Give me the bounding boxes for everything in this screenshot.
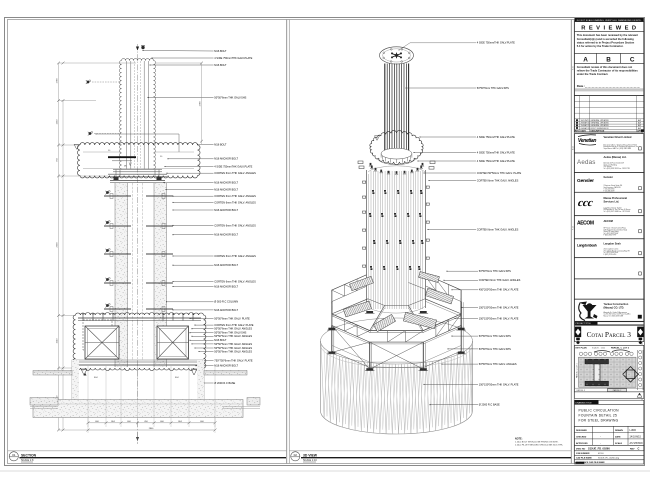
svg-text:Venetian Orient Limited: Venetian Orient Limited bbox=[604, 136, 632, 139]
svg-text:LangdonSeah: LangdonSeah bbox=[577, 243, 597, 247]
svg-text:CORTEN 6mm THK GALV. ANGLES: CORTEN 6mm THK GALV. ANGLES bbox=[477, 227, 519, 231]
svg-text:M16 ANCHOR BOLT: M16 ANCHOR BOLT bbox=[214, 157, 238, 161]
svg-text:CORTEN 6mm THK GALV. ANGLES: CORTEN 6mm THK GALV. ANGLES bbox=[214, 223, 256, 227]
svg-text:M16 ANCHOR BOLT: M16 ANCHOR BOLT bbox=[214, 233, 238, 237]
svg-text:LUND: LUND bbox=[630, 429, 637, 432]
svg-text:02: 02 bbox=[294, 453, 298, 457]
svg-text:SECTION: SECTION bbox=[21, 454, 37, 458]
svg-text:FIRST SUBMISSION: FIRST SUBMISSION bbox=[591, 128, 609, 130]
svg-text:Macau Tel : (853) 2870 0389: Macau Tel : (853) 2870 0389 bbox=[604, 315, 624, 317]
svg-text:Ø 2000 R.C BASE: Ø 2000 R.C BASE bbox=[479, 403, 500, 407]
svg-text:Langdon Seah: Langdon Seah bbox=[604, 242, 622, 245]
svg-text:28/MAY/15: 28/MAY/15 bbox=[581, 122, 590, 125]
svg-text:KEY PLAN: KEY PLAN bbox=[576, 347, 587, 350]
svg-text:01: 01 bbox=[12, 453, 16, 457]
svg-text:DRAWING TITLE: DRAWING TITLE bbox=[576, 401, 593, 404]
svg-text:AECOM: AECOM bbox=[577, 221, 594, 227]
svg-text:AW: AW bbox=[638, 119, 641, 122]
svg-text:GENERAL UPDATED: GENERAL UPDATED bbox=[591, 119, 610, 122]
svg-text:CAD FILE NAME: CAD FILE NAME bbox=[576, 457, 592, 460]
svg-text:AW: AW bbox=[638, 127, 641, 130]
svg-text:50*50*6mm THK GALV.SHS: 50*50*6mm THK GALV.SHS bbox=[477, 86, 509, 90]
svg-text:Consultant(s)(s) and is accord: Consultant(s)(s) and is accorded the fol… bbox=[577, 37, 634, 41]
svg-text:GENERAL UPDATED: GENERAL UPDATED bbox=[591, 122, 610, 125]
svg-text:1540: 1540 bbox=[57, 338, 59, 344]
svg-text:Ø 500 R.C COLUMN: Ø 500 R.C COLUMN bbox=[214, 300, 238, 304]
svg-text:F-12: F-12 bbox=[573, 226, 575, 230]
svg-text:M16 ANCHOR BOLT: M16 ANCHOR BOLT bbox=[214, 364, 238, 368]
svg-text:F (852) 3922 9797: F (852) 3922 9797 bbox=[604, 235, 617, 237]
svg-text:4 SIDE 750mmTHK GALV.PLATE: 4 SIDE 750mmTHK GALV.PLATE bbox=[477, 41, 515, 45]
svg-text:Tel : (852) 3922 9000: Tel : (852) 3922 9000 bbox=[604, 233, 619, 235]
svg-text:DATE: DATE bbox=[581, 130, 587, 133]
svg-text:150*150*50mm THK GALV. PLATE: 150*150*50mm THK GALV. PLATE bbox=[479, 305, 519, 309]
svg-text:AW: AW bbox=[638, 124, 641, 127]
svg-text:DRAWN: DRAWN bbox=[615, 429, 623, 432]
svg-text:4 SIDE 750mmTHK GALV.PLATE: 4 SIDE 750mmTHK GALV.PLATE bbox=[477, 159, 515, 163]
svg-text:450*200*50mm THK GALV. PLATE: 450*200*50mm THK GALV. PLATE bbox=[479, 288, 519, 292]
svg-text:Date :: Date : bbox=[577, 84, 586, 88]
svg-text:50*50*6mm THK GALV. ANGLES: 50*50*6mm THK GALV. ANGLES bbox=[214, 327, 252, 331]
svg-text:Services Ltd.: Services Ltd. bbox=[604, 200, 620, 203]
svg-text:M16 BOLT: M16 BOLT bbox=[214, 49, 227, 53]
svg-text:50*50*6mm THK GALV. ANGLES: 50*50*6mm THK GALV. ANGLES bbox=[214, 346, 252, 350]
svg-text:61516: 61516 bbox=[598, 453, 604, 455]
svg-text:SCALE 1 : 2500: SCALE 1 : 2500 bbox=[592, 347, 605, 350]
svg-text:50*50*6mm THK GALV. ANGLES: 50*50*6mm THK GALV. ANGLES bbox=[214, 349, 252, 353]
svg-text:CORTEN 6mm THK GALV. ANGLES: CORTEN 6mm THK GALV. ANGLES bbox=[214, 254, 256, 258]
svg-text:50*50*6mm THK GALV.SHS: 50*50*6mm THK GALV.SHS bbox=[479, 347, 511, 351]
svg-text:T 415.433.3700: T 415.433.3700 bbox=[604, 189, 615, 191]
svg-text:F (852) 2576 0416: F (852) 2576 0416 bbox=[604, 254, 617, 256]
svg-text:CORTEN 50*50mm THK GALV. PLATE: CORTEN 50*50mm THK GALV. PLATE bbox=[477, 171, 522, 175]
svg-text:4 SIDE 750mmTHK GALV.PLATE: 4 SIDE 750mmTHK GALV.PLATE bbox=[477, 150, 515, 154]
svg-text:CORTEN 6mm THK GALV. ANGLES: CORTEN 6mm THK GALV. ANGLES bbox=[477, 178, 519, 182]
svg-text:3D VIEW: 3D VIEW bbox=[303, 454, 318, 458]
svg-text:Tel : (852) 2830 3500: Tel : (852) 2830 3500 bbox=[604, 252, 619, 254]
svg-text:(Macau) CO. LTD.: (Macau) CO. LTD. bbox=[604, 306, 625, 309]
svg-text:SCALE 1:8: SCALE 1:8 bbox=[21, 459, 34, 462]
svg-text:C: C bbox=[630, 57, 635, 64]
svg-text:FOR STEEL DRAWING: FOR STEEL DRAWING bbox=[579, 418, 619, 422]
svg-text:50*50*6mm THK GALV. ANGLES: 50*50*6mm THK GALV. ANGLES bbox=[214, 334, 252, 338]
svg-text:China Law Building: China Law Building bbox=[604, 164, 617, 166]
svg-text:Aedas (Macau) Ltd.: Aedas (Macau) Ltd. bbox=[604, 156, 627, 159]
svg-text:S-15: S-15 bbox=[573, 66, 575, 70]
svg-text:2. ALL FILLET WELDED SHOULD BE: 2. ALL FILLET WELDED SHOULD BE 3mm THK. bbox=[515, 444, 563, 447]
svg-text:GENERAL UPDATED: GENERAL UPDATED bbox=[591, 124, 610, 127]
svg-text:4 SIDE 750mmTHK GALV.PLATE: 4 SIDE 750mmTHK GALV.PLATE bbox=[214, 164, 252, 168]
svg-text:03/MAY/15: 03/MAY/15 bbox=[581, 127, 590, 130]
svg-text:CHECKED: CHECKED bbox=[576, 437, 587, 439]
svg-text:CORTEN 6mm THK GALV. ANGLES: CORTEN 6mm THK GALV. ANGLES bbox=[214, 279, 256, 283]
svg-text:M16 BOLT: M16 BOLT bbox=[214, 142, 227, 146]
svg-text:PARCEL 2: PARCEL 2 bbox=[613, 389, 622, 392]
svg-text:PARCEL 1, LOT 2: PARCEL 1, LOT 2 bbox=[611, 347, 630, 350]
svg-text:50*50*6mm THK GALV.SHS: 50*50*6mm THK GALV.SHS bbox=[479, 269, 511, 273]
svg-text:CORTEN 6mm THK GALV. PLATE: CORTEN 6mm THK GALV. PLATE bbox=[214, 323, 254, 327]
svg-text:S15UE_FD_00260: S15UE_FD_00260 bbox=[588, 446, 610, 450]
svg-text:-: - bbox=[13, 459, 14, 462]
svg-text:Aedas: Aedas bbox=[577, 159, 596, 166]
svg-text:FOUNTAIN DETAIL 25: FOUNTAIN DETAIL 25 bbox=[579, 413, 618, 417]
svg-text:50*50*6mm THK GALV. PLATE: 50*50*6mm THK GALV. PLATE bbox=[214, 316, 250, 320]
svg-text:M16 BOLT: M16 BOLT bbox=[214, 63, 227, 67]
svg-text:-: - bbox=[295, 459, 296, 462]
svg-text:APPROVED: APPROVED bbox=[576, 442, 588, 445]
svg-text:Cotai Parcel 3: Cotai Parcel 3 bbox=[587, 330, 632, 339]
svg-text:50*50*6mm THK GALV.SHS: 50*50*6mm THK GALV.SHS bbox=[214, 331, 246, 335]
svg-text:Consultant review of this: Consultant review of this document does … bbox=[577, 65, 633, 69]
svg-text:under the Trade Contract.: under the Trade Contract. bbox=[577, 72, 609, 76]
svg-text:50*50*6mm THK GALV.SHS: 50*50*6mm THK GALV.SHS bbox=[479, 334, 511, 338]
svg-text:4 SIDE 750mmTHK GALV.PLATE: 4 SIDE 750mmTHK GALV.PLATE bbox=[477, 135, 515, 139]
svg-text:REV: REV bbox=[575, 131, 580, 133]
svg-text:DESIGNED: DESIGNED bbox=[576, 430, 587, 432]
svg-text:50*50*6mm THK GALV. ANGLES: 50*50*6mm THK GALV. ANGLES bbox=[479, 362, 517, 366]
svg-text:1359: 1359 bbox=[57, 119, 59, 125]
svg-text:M16 ANCHOR BOLT: M16 ANCHOR BOLT bbox=[214, 208, 238, 212]
svg-text:5.4 for action by the Trade Co: 5.4 for action by the Trade Contractor. bbox=[577, 44, 624, 48]
svg-text:JOB NUMBER: JOB NUMBER bbox=[576, 453, 590, 455]
svg-text:B: B bbox=[606, 57, 611, 64]
svg-text:M16 ANCHOR BOLT: M16 ANCHOR BOLT bbox=[214, 308, 238, 312]
svg-text:B-04: B-04 bbox=[573, 146, 575, 150]
svg-text:CORTEN 6mm THK GALV. ANGLES: CORTEN 6mm THK GALV. ANGLES bbox=[214, 171, 256, 175]
svg-text:Venetian: Venetian bbox=[578, 138, 597, 144]
svg-text:14/JUN/15: 14/JUN/15 bbox=[630, 436, 642, 439]
svg-text:1. ALL BOLT SHOULD BE FIXING O: 1. ALL BOLT SHOULD BE FIXING ON SITE. bbox=[515, 441, 559, 444]
svg-text:M16 ANCHOR BOLT: M16 ANCHOR BOLT bbox=[214, 187, 238, 191]
svg-text:SCALE: SCALE bbox=[615, 442, 623, 445]
svg-text:AECOM: AECOM bbox=[604, 220, 613, 223]
svg-text:M16 BOLT: M16 BOLT bbox=[214, 338, 227, 342]
svg-text:M16 ANCHOR BOLT: M16 ANCHOR BOLT bbox=[214, 180, 238, 184]
svg-text:PUBLIC CIRCULATION: PUBLIC CIRCULATION bbox=[579, 408, 620, 412]
svg-text:C: C bbox=[638, 446, 640, 450]
svg-text:Tel : (853) 2875 3088 Fax : 2: Tel : (853) 2875 3088 Fax : 2875 3068 bbox=[604, 211, 630, 213]
svg-text:PROJECT TITLE: PROJECT TITLE bbox=[576, 323, 592, 325]
svg-text:1788: 1788 bbox=[57, 78, 59, 84]
svg-text:F 415.836.4599: F 415.836.4599 bbox=[604, 190, 615, 192]
svg-text:M16 ANCHOR BOLT: M16 ANCHOR BOLT bbox=[214, 263, 238, 267]
svg-text:R E V I E W E D: R E V I E W E D bbox=[581, 25, 637, 31]
svg-text:AS SHOWN: AS SHOWN bbox=[630, 442, 643, 445]
svg-text:Yackee Construction: Yackee Construction bbox=[604, 303, 629, 306]
svg-text:50*50*6mm THK GALV.SHS: 50*50*6mm THK GALV.SHS bbox=[214, 95, 246, 99]
svg-text:15/MAY/15: 15/MAY/15 bbox=[581, 124, 590, 127]
svg-text:CORTEN 6mm THK GALV. ANGLES: CORTEN 6mm THK GALV. ANGLES bbox=[214, 194, 256, 198]
svg-text:Ø 2000 R.C BASE: Ø 2000 R.C BASE bbox=[214, 381, 235, 385]
svg-text:750*750*6mm THK GALV. PLATE: 750*750*6mm THK GALV. PLATE bbox=[214, 359, 253, 363]
svg-text:S15UE_FD_00260.dwg: S15UE_FD_00260.dwg bbox=[598, 458, 619, 460]
svg-text:4 SIDE 750mmTHK GALV.PLATE: 4 SIDE 750mmTHK GALV.PLATE bbox=[214, 56, 252, 60]
svg-text:status referred to in Projec: status referred to in Project Procedure … bbox=[577, 40, 635, 44]
svg-text:relieve the Trade Contracto: relieve the Trade Contractor of its resp… bbox=[577, 68, 639, 72]
svg-text:Gensler: Gensler bbox=[604, 176, 613, 179]
svg-text:PARCEL 1, LOT 1: PARCEL 1, LOT 1 bbox=[575, 364, 578, 378]
svg-text:DATE: DATE bbox=[615, 436, 621, 439]
svg-text:CORTEN 6mm THK GALV. ANGLES: CORTEN 6mm THK GALV. ANGLES bbox=[479, 278, 521, 282]
svg-text:150*150*50mm THK GALV. PLATE: 150*150*50mm THK GALV. PLATE bbox=[479, 382, 519, 386]
svg-text:SCALE 1:10: SCALE 1:10 bbox=[303, 459, 317, 462]
svg-text:M16 ANCHOR BOLT: M16 ANCHOR BOLT bbox=[214, 284, 238, 288]
svg-text:DWG NO: DWG NO bbox=[576, 448, 586, 450]
svg-text:Gensler: Gensler bbox=[577, 178, 594, 184]
svg-text:REV: REV bbox=[630, 448, 635, 450]
svg-text:AW: AW bbox=[638, 122, 641, 125]
svg-text:This document has been reviewe: This document has been reviewed by the r… bbox=[577, 33, 638, 37]
svg-text:2958: 2958 bbox=[57, 242, 59, 248]
svg-text:Tel : (853) 2833 1133 Fax : 2: Tel : (853) 2833 1133 Fax : 2833 1798 bbox=[604, 168, 630, 170]
svg-text:DESCRIPTION: DESCRIPTION bbox=[591, 131, 605, 133]
svg-text:NOTE:: NOTE: bbox=[515, 438, 523, 441]
svg-text:CORTEN 6mm THK GALV. ANGLES: CORTEN 6mm THK GALV. ANGLES bbox=[214, 200, 256, 204]
svg-text:21/F Macau: 21/F Macau bbox=[604, 166, 612, 168]
svg-text:A: A bbox=[583, 57, 588, 64]
svg-text:1788: 1788 bbox=[200, 101, 202, 107]
svg-text:150*150*50mm THK GALV. PLATE: 150*150*50mm THK GALV. PLATE bbox=[479, 316, 519, 320]
svg-text:50*50*6mm THK GALV. ANGLES: 50*50*6mm THK GALV. ANGLES bbox=[214, 342, 252, 346]
